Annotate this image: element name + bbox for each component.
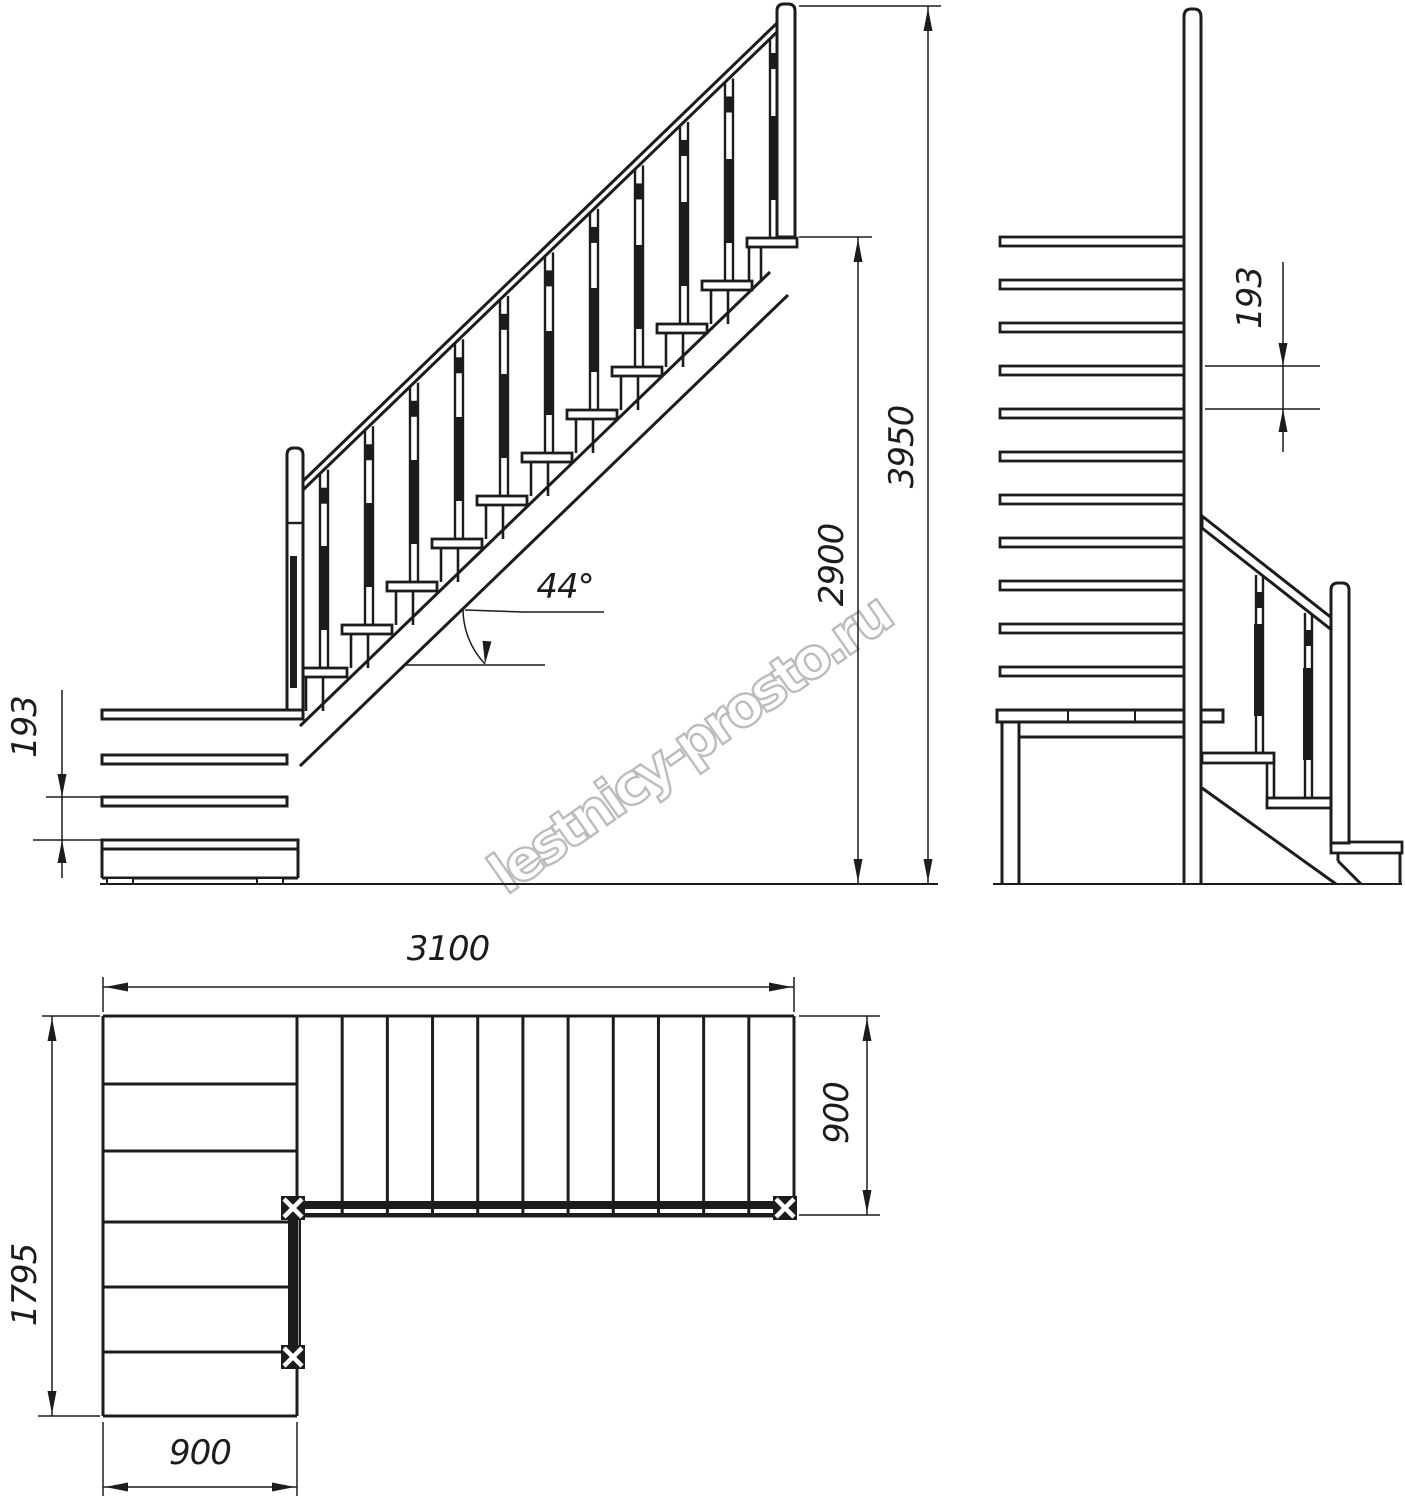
side-structure-shape: [590, 227, 598, 243]
plan-dimensions-shape: [48, 1391, 57, 1414]
front-dimensions-shape: [1279, 343, 1288, 366]
side-structure-shape: [410, 401, 418, 417]
front-structure-shape: [1254, 624, 1264, 716]
side-structure-shape: [300, 272, 770, 726]
side-dimensions: [33, 6, 941, 884]
side-dimensions-shape: [58, 840, 67, 863]
front-structure-shape: [1267, 798, 1340, 808]
side-structure-shape: [455, 357, 463, 373]
front-structure-shape: [1000, 452, 1184, 461]
plan-dimensions-shape: [863, 1018, 872, 1041]
front-structure-shape: [1202, 516, 1333, 631]
side-dimensions-shape: [924, 859, 933, 882]
side-structure-shape: [544, 331, 554, 415]
side-structure-shape: [747, 238, 797, 247]
front-structure-shape: [1000, 366, 1184, 375]
plan-dimensions-shape: [48, 1018, 57, 1041]
plan-dimensions: [38, 977, 880, 1496]
front-structure-shape: [1202, 753, 1274, 763]
side-structure-shape: [725, 96, 733, 112]
plan-dimensions-shape: [769, 983, 792, 992]
front-structure-shape: [1000, 495, 1184, 504]
side-structure-shape: [257, 878, 283, 884]
front-structure-shape: [1305, 630, 1313, 646]
side-dimensions-shape: [58, 774, 67, 797]
side-structure-shape: [702, 281, 752, 290]
side-structure-shape: [680, 140, 688, 156]
front-elevation-view: 193: [993, 9, 1402, 884]
side-structure-shape: [409, 460, 419, 544]
dim-plan-depth-label: 1795: [5, 1244, 45, 1327]
front-structure-shape: [1000, 624, 1184, 633]
front-structure-shape: [1000, 667, 1184, 676]
front-structure-shape: [1000, 323, 1184, 332]
side-structure-shape: [107, 878, 133, 884]
front-structure-shape: [1000, 237, 1184, 246]
side-structure-shape: [567, 410, 617, 419]
side-structure-shape: [290, 556, 297, 688]
watermark-text: lestnicy-prosto.ru: [477, 582, 902, 907]
side-structure-shape: [432, 539, 482, 548]
dim-floor-height-label: 2900: [812, 524, 852, 607]
front-structure-shape: [1000, 280, 1184, 289]
side-angle-annotation-shape: [463, 609, 485, 664]
side-structure-shape: [477, 496, 527, 505]
side-structure-shape: [522, 453, 572, 462]
front-structure-shape: [1256, 592, 1264, 608]
side-structure-shape: [102, 797, 287, 806]
dim-angle-label: 44°: [536, 567, 593, 607]
side-structure-shape: [342, 625, 392, 634]
side-structure-shape: [777, 4, 795, 237]
side-structure-shape: [102, 755, 287, 764]
front-structure: [993, 9, 1402, 884]
front-structure-shape: [1000, 409, 1184, 418]
side-structure-shape: [303, 23, 777, 490]
front-structure-shape: [1000, 581, 1184, 590]
side-structure-shape: [319, 546, 329, 630]
side-structure-shape: [657, 324, 707, 333]
side-structure: [100, 4, 938, 884]
front-structure-shape: [1338, 861, 1361, 884]
side-structure-shape: [589, 288, 599, 372]
side-structure-shape: [365, 444, 373, 460]
side-structure-shape: [612, 367, 662, 376]
plan-dimensions-shape: [105, 1483, 128, 1492]
side-elevation-view: 193 44° 2900 3950: [5, 4, 941, 884]
plan-dimensions-shape: [105, 983, 128, 992]
side-structure-shape: [500, 314, 508, 330]
front-structure-shape: [1331, 583, 1349, 843]
plan-view: 3100 1795 900 900: [5, 929, 880, 1496]
stair-drawing: lestnicy-prosto.ru 193 44° 2900 3950 193…: [0, 0, 1405, 1500]
plan-dimensions-shape: [272, 1483, 295, 1492]
side-structure-shape: [635, 183, 643, 199]
side-structure-shape: [679, 202, 689, 286]
side-structure-shape: [724, 159, 734, 243]
plan-structure: [103, 1016, 797, 1416]
side-dimensions-shape: [924, 8, 933, 31]
side-structure-shape: [387, 582, 437, 591]
side-structure-shape: [364, 503, 374, 587]
side-structure-shape: [634, 245, 644, 329]
side-structure-shape: [320, 488, 328, 504]
side-structure-shape: [102, 710, 303, 719]
dim-riser-side-label: 193: [5, 696, 45, 758]
front-structure-shape: [1303, 668, 1313, 760]
plan-dimensions-shape: [863, 1190, 872, 1213]
dim-plan-length-label: 3100: [407, 929, 490, 969]
dim-plan-width-right-label: 900: [817, 1082, 857, 1144]
front-dimensions-shape: [1279, 409, 1288, 432]
side-structure-shape: [454, 417, 464, 501]
side-structure-shape: [545, 270, 553, 286]
dim-plan-width-bottom-label: 900: [169, 1433, 231, 1473]
stair-drawing-sheet: lestnicy-prosto.ru 193 44° 2900 3950 193…: [0, 0, 1405, 1500]
side-structure-shape: [102, 840, 298, 849]
side-dimensions-shape: [854, 859, 863, 882]
front-structure-shape: [1000, 538, 1184, 547]
dim-riser-front-label: 193: [1230, 267, 1270, 329]
dim-total-height-label: 3950: [882, 406, 922, 489]
side-angle-annotation-shape: [465, 610, 604, 612]
front-structure-shape: [1184, 9, 1201, 884]
side-dimensions-shape: [854, 239, 863, 262]
side-structure-shape: [499, 374, 509, 458]
